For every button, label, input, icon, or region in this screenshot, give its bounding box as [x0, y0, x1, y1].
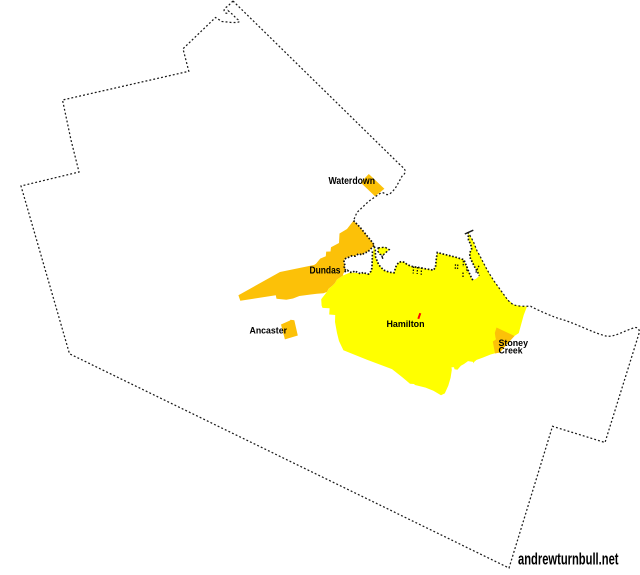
- svg-text:Ancaster: Ancaster: [250, 326, 288, 337]
- svg-text:Hamilton: Hamilton: [387, 319, 425, 330]
- svg-text:Waterdown: Waterdown: [329, 176, 376, 187]
- svg-text:Creek: Creek: [499, 345, 524, 356]
- svg-text:andrewturnbull.net: andrewturnbull.net: [518, 551, 619, 569]
- svg-text:Dundas: Dundas: [310, 266, 341, 277]
